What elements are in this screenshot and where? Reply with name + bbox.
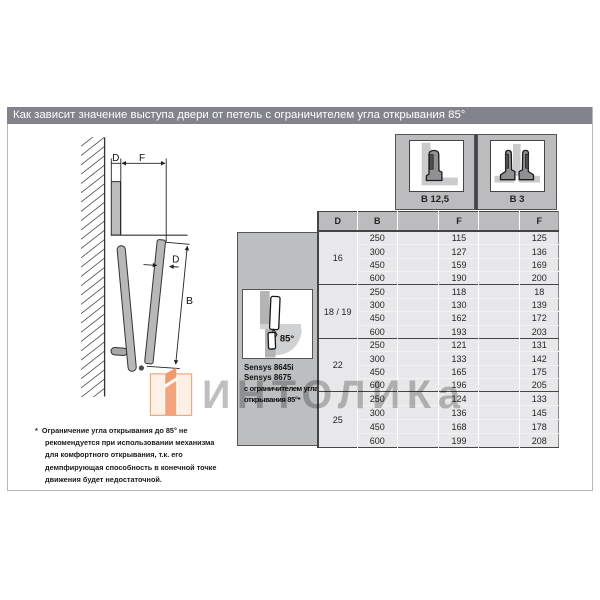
svg-text:F: F [139,153,145,164]
svg-text:D: D [172,255,179,266]
svg-text:B: B [186,295,193,307]
svg-text:D: D [112,153,119,164]
svg-text:85°: 85° [279,334,294,345]
